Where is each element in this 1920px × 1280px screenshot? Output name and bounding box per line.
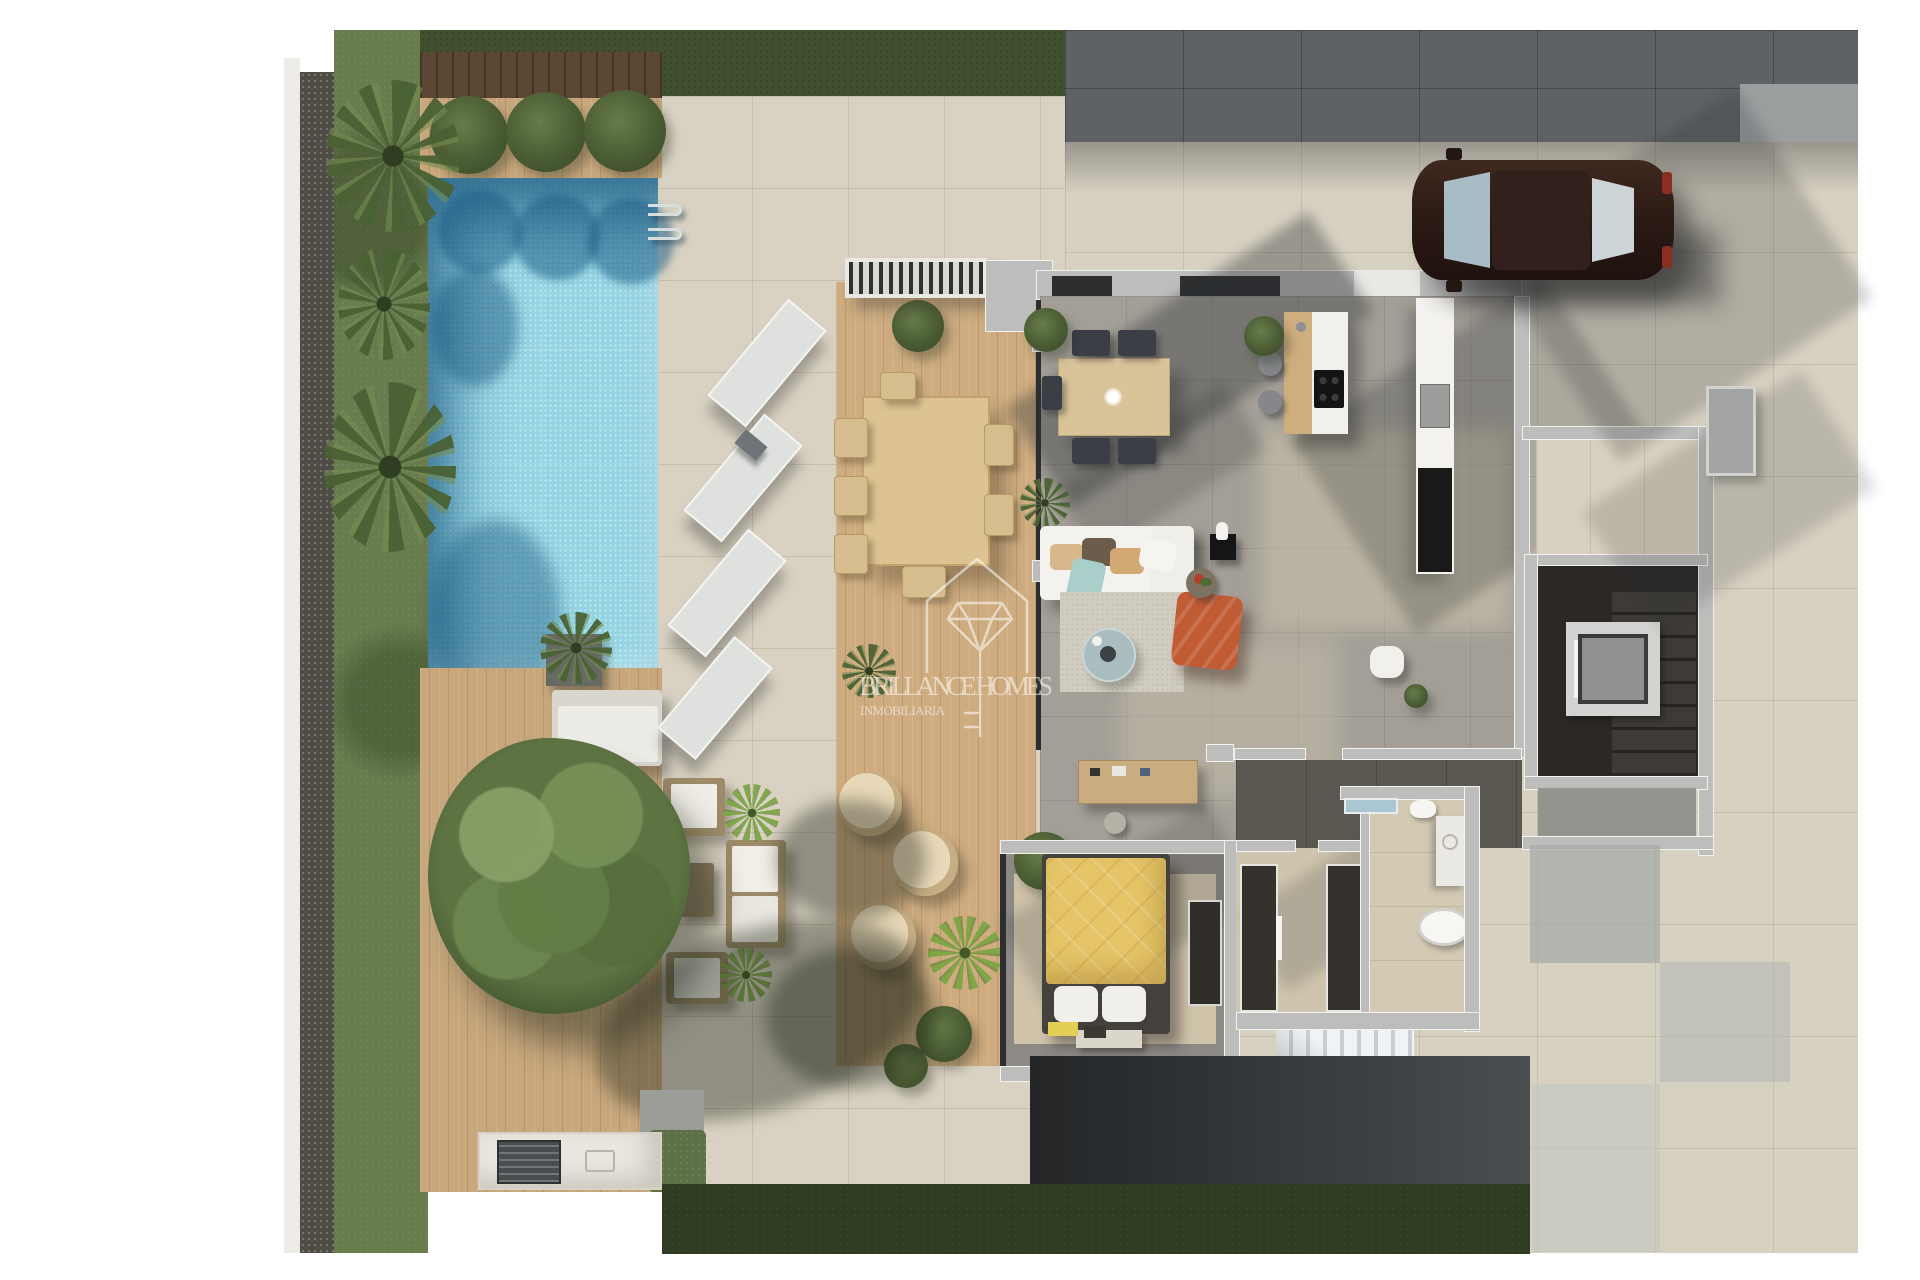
watermark-logo: BRILLANCE HOMES INMOBILIARIA	[860, 545, 1130, 760]
lower-wall-post	[1206, 744, 1234, 762]
cooktop	[1314, 370, 1344, 408]
indoor-chair-bottom-1	[1072, 438, 1110, 464]
gravel-border-strip	[300, 72, 334, 1253]
pool-ladder-rail-2	[648, 228, 682, 240]
kitchen-faucet	[1296, 322, 1306, 332]
elevator-cab	[1578, 634, 1648, 704]
elevator-door-line	[1574, 640, 1578, 698]
bathroom-divider-wall	[1360, 798, 1370, 1016]
terrace-plant-top	[892, 300, 944, 352]
car-mirror-top	[1446, 148, 1462, 160]
ac-utility-unit	[1706, 386, 1756, 476]
outdoor-chair-left-2	[834, 476, 868, 516]
car-windshield	[1444, 172, 1490, 268]
closet-top-wall-1	[1236, 840, 1296, 852]
console-stool	[1104, 812, 1126, 834]
outdoor-chair-top	[880, 372, 916, 400]
bedroom-top-wall	[1000, 840, 1238, 854]
pool-bush-shadow-1	[438, 190, 522, 274]
sofa-pillow-white	[1138, 537, 1179, 573]
nightstand-dark-decor	[1084, 1026, 1106, 1038]
pool-bush-shadow-2	[514, 194, 600, 280]
lower-wall-seg-1	[1234, 748, 1306, 760]
kitchen-tall-units-black	[1418, 468, 1452, 572]
pool-palm-shadow-1	[432, 268, 518, 386]
rattan-sofa-cushion-1	[732, 846, 778, 892]
bbq-grill	[497, 1140, 561, 1184]
topiary-bush-3	[584, 90, 666, 172]
car-taillight-top	[1662, 172, 1672, 194]
bed-pillow-1	[1054, 986, 1098, 1022]
pergola-slats	[845, 258, 987, 298]
console-decor-dark	[1090, 768, 1100, 776]
bottom-right-gray-patch-3	[1532, 1084, 1660, 1252]
dining-centerpiece	[1104, 388, 1122, 406]
toilet	[1410, 800, 1436, 818]
car-mirror-bottom	[1446, 280, 1462, 292]
living-plant-2	[1020, 478, 1070, 528]
console-desk	[1078, 760, 1198, 804]
nightstand-yellow-decor	[1048, 1022, 1078, 1036]
watermark-brand-text: BRILLANCE HOMES	[860, 671, 1057, 701]
bottom-right-gray-patch-1	[1530, 845, 1660, 963]
planter-plant	[540, 612, 612, 684]
concrete-block	[640, 1090, 704, 1132]
kitchen-wall-door-panel	[1420, 384, 1450, 428]
garden-palm-top	[326, 80, 460, 232]
terrace-palm-lower	[928, 916, 1002, 990]
bed-yellow-duvet	[1046, 858, 1166, 984]
car-taillight-bottom	[1662, 246, 1672, 268]
bottom-dark-paving	[1030, 1056, 1530, 1186]
topiary-bush-2	[506, 92, 586, 172]
indoor-chair-top-1	[1072, 330, 1110, 356]
bottom-grass-band	[662, 1184, 1530, 1254]
white-pouf	[1370, 646, 1404, 678]
bedroom-glass-wall	[1000, 854, 1006, 1068]
wardrobe-dark	[1188, 900, 1222, 1006]
stair-left-wall	[1524, 554, 1538, 788]
watermark-diamond	[948, 603, 1012, 651]
outdoor-dining-table	[862, 396, 990, 566]
left-boundary-wall	[284, 58, 300, 1253]
lounge-plant-1	[724, 784, 780, 842]
outdoor-chair-right-2	[984, 494, 1014, 536]
wing-bottom-wall	[1236, 1012, 1480, 1030]
garden-palm-small	[338, 248, 430, 360]
bar-stool-2	[1258, 390, 1282, 414]
floor-plan-render: BRILLANCE HOMES INMOBILIARIA	[0, 0, 1920, 1280]
bathtub	[1418, 908, 1470, 946]
top-lawn-band	[662, 30, 1068, 98]
living-plant-1	[1024, 308, 1068, 352]
indoor-chair-left	[1042, 376, 1062, 410]
white-vase-lamp	[1216, 522, 1228, 540]
closet-door-mark-1	[1276, 916, 1282, 960]
watermark-subtitle-text: INMOBILIARIA	[860, 703, 948, 718]
bbq-sink	[585, 1150, 615, 1172]
top-glass-opening-1	[1052, 276, 1112, 296]
lower-wall-seg-2	[1342, 748, 1522, 760]
side-table-leaf-green	[1200, 578, 1212, 586]
bathroom-right-wall	[1464, 786, 1480, 1032]
outdoor-chair-right-1	[984, 424, 1014, 466]
bed-pillow-2	[1102, 986, 1146, 1022]
car-rear-window	[1592, 178, 1634, 262]
outdoor-chair-left-1	[834, 418, 868, 458]
indoor-chair-bottom-2	[1118, 438, 1156, 464]
hall-mini-plant	[1404, 684, 1428, 708]
bathroom-vanity	[1436, 816, 1466, 886]
shower-glass	[1344, 798, 1398, 814]
bottom-right-gray-patch-2	[1660, 962, 1790, 1082]
kitchen-planter-tree	[1244, 316, 1284, 356]
orange-pouf	[1170, 591, 1243, 671]
palm-shadow-1	[776, 800, 926, 920]
console-decor-blue	[1140, 768, 1150, 776]
console-decor-white	[1112, 766, 1126, 776]
below-stairs-floor	[1538, 788, 1696, 838]
indoor-chair-top-2	[1118, 330, 1156, 356]
pool-ladder-rail-1	[648, 204, 682, 216]
closet-room-1	[1240, 864, 1278, 1012]
car-roof	[1492, 170, 1590, 270]
vanity-basin	[1442, 834, 1458, 850]
garden-palm-mid	[324, 382, 456, 552]
